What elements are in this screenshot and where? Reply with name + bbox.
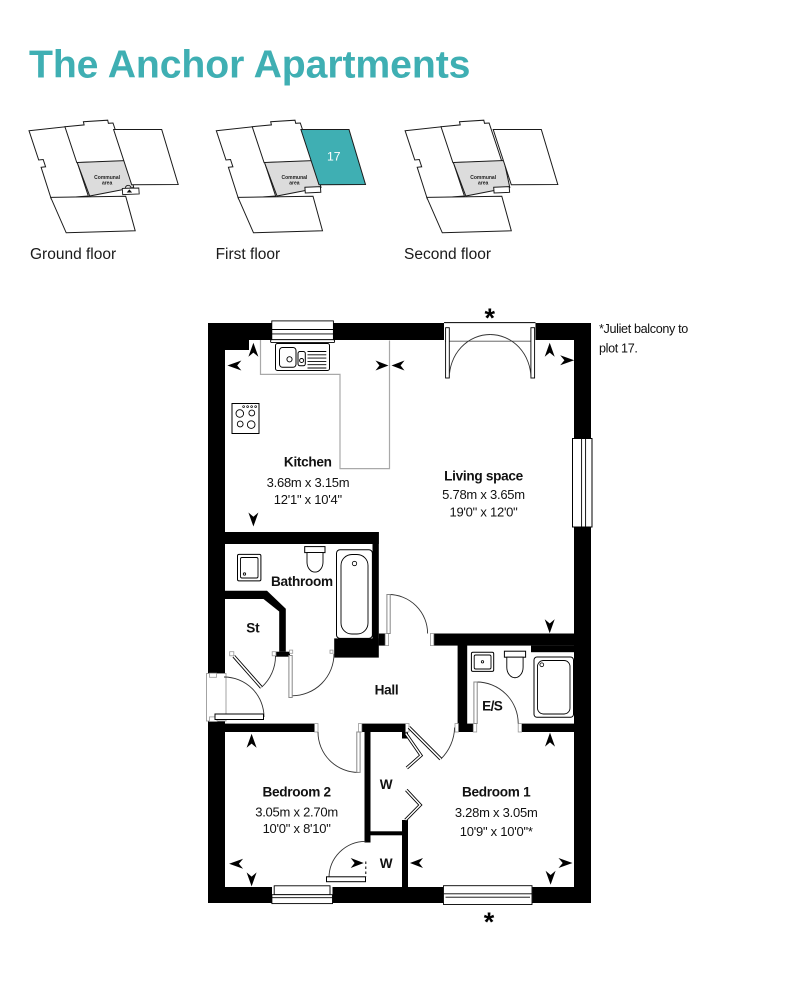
svg-text:*: * bbox=[484, 907, 495, 937]
svg-text:10'9" x 10'0"*: 10'9" x 10'0"* bbox=[460, 824, 533, 839]
svg-text:Second floor: Second floor bbox=[404, 246, 491, 263]
svg-text:plot 17.: plot 17. bbox=[599, 342, 638, 356]
svg-text:E/S: E/S bbox=[482, 699, 503, 714]
svg-text:Bathroom: Bathroom bbox=[271, 574, 333, 589]
svg-text:10'0" x 8'10": 10'0" x 8'10" bbox=[263, 821, 332, 836]
svg-text:Ground floor: Ground floor bbox=[30, 246, 116, 263]
svg-text:*Juliet balcony to: *Juliet balcony to bbox=[599, 322, 688, 336]
svg-text:Bedroom 1: Bedroom 1 bbox=[462, 785, 531, 800]
svg-text:W: W bbox=[380, 856, 393, 871]
svg-text:area: area bbox=[289, 181, 300, 187]
svg-text:3.68m x 3.15m: 3.68m x 3.15m bbox=[267, 475, 350, 490]
svg-text:St: St bbox=[246, 621, 260, 636]
svg-text:3.05m x 2.70m: 3.05m x 2.70m bbox=[255, 805, 338, 820]
svg-text:19'0" x 12'0": 19'0" x 12'0" bbox=[449, 505, 518, 520]
svg-text:W: W bbox=[380, 777, 393, 792]
svg-text:Living space: Living space bbox=[444, 469, 523, 484]
svg-text:The Anchor Apartments: The Anchor Apartments bbox=[29, 43, 470, 86]
svg-text:First floor: First floor bbox=[216, 246, 281, 263]
svg-text:12'1" x 10'4": 12'1" x 10'4" bbox=[274, 492, 343, 507]
svg-text:Kitchen: Kitchen bbox=[284, 455, 332, 470]
svg-text:3.28m x 3.05m: 3.28m x 3.05m bbox=[455, 805, 538, 820]
svg-text:Hall: Hall bbox=[375, 683, 399, 698]
svg-text:area: area bbox=[102, 181, 113, 187]
svg-text:Bedroom 2: Bedroom 2 bbox=[262, 784, 331, 799]
svg-text:5.78m x 3.65m: 5.78m x 3.65m bbox=[442, 487, 525, 502]
svg-text:area: area bbox=[478, 181, 489, 187]
svg-text:17: 17 bbox=[327, 149, 341, 163]
svg-text:*: * bbox=[484, 303, 495, 333]
